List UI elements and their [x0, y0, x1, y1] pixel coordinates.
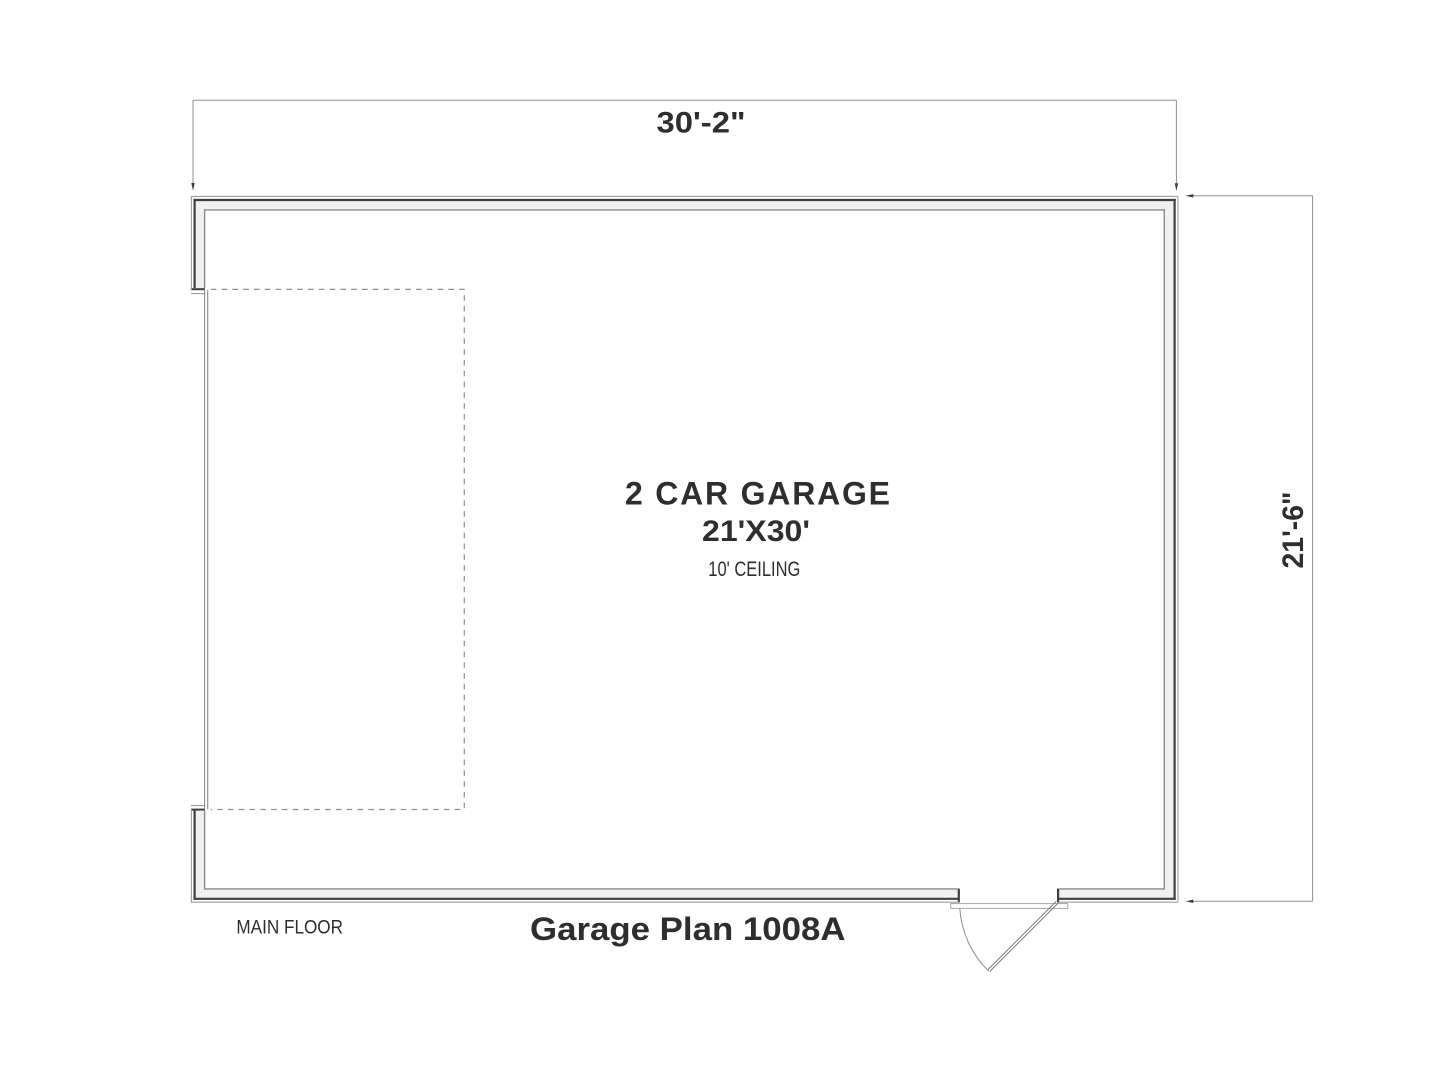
svg-text:2 CAR GARAGE: 2 CAR GARAGE [625, 476, 890, 512]
svg-text:21'-6": 21'-6" [1277, 492, 1310, 569]
svg-text:21'X30': 21'X30' [702, 515, 810, 548]
svg-text:30'-2": 30'-2" [657, 107, 746, 140]
svg-text:10' CEILING: 10' CEILING [708, 558, 800, 581]
svg-text:MAIN FLOOR: MAIN FLOOR [236, 918, 343, 939]
svg-text:Garage Plan 1008A: Garage Plan 1008A [530, 911, 846, 947]
